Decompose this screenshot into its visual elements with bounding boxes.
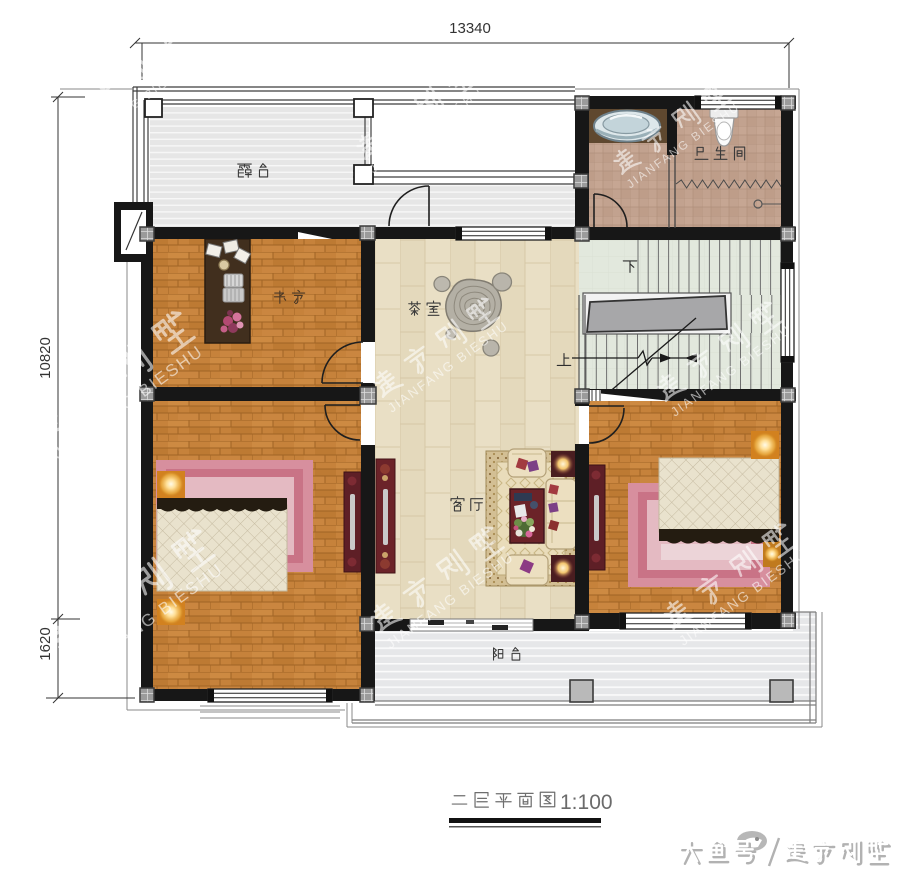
svg-text:13340: 13340 (449, 20, 491, 37)
svg-text:1620: 1620 (37, 627, 54, 660)
svg-text:10820: 10820 (37, 337, 54, 379)
svg-text:1:100: 1:100 (560, 791, 613, 814)
